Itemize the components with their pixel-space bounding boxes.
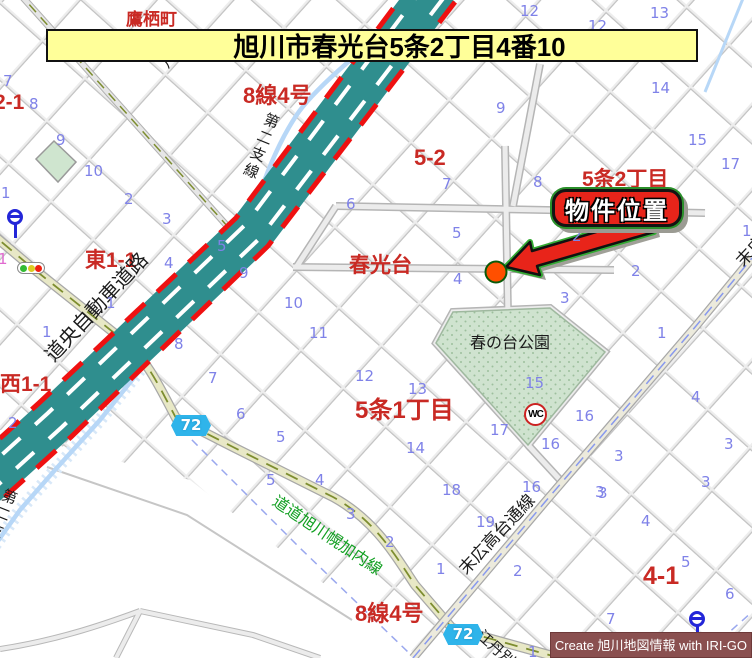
lot-number: 10 bbox=[284, 294, 303, 312]
lot-number: 19 bbox=[476, 513, 495, 531]
lot-number: 7 bbox=[442, 175, 452, 193]
lot-number: 2 bbox=[631, 262, 641, 280]
lot-number: 5 bbox=[276, 428, 286, 446]
lot-number: 2 bbox=[385, 533, 395, 551]
lot-number: 3 bbox=[346, 505, 356, 523]
lot-number: 3 bbox=[701, 473, 711, 491]
lot-number: 4 bbox=[453, 270, 463, 288]
lot-number: 1 bbox=[528, 643, 538, 658]
lot-number: 5 bbox=[452, 224, 462, 242]
lot-number: 2 bbox=[513, 562, 523, 580]
block-label-2-1: 2-1 bbox=[0, 92, 24, 114]
lot-number: 6 bbox=[346, 195, 356, 213]
lot-number: 7 bbox=[3, 72, 13, 90]
district-label-5jo2chome: 5条2丁目 bbox=[582, 169, 668, 191]
lot-number: 7 bbox=[606, 610, 616, 628]
lot-number: 16 bbox=[522, 478, 541, 496]
lot-number: 8 bbox=[174, 335, 184, 353]
map-canvas[interactable]: 鷹栖町8線4号八線第二支線第二支線2-15-25条2丁目春光台東1-1西1-15… bbox=[0, 0, 752, 658]
lot-number: 2 bbox=[124, 190, 134, 208]
lot-number: 3 bbox=[598, 484, 608, 502]
lot-number: 1 bbox=[106, 294, 116, 312]
lot-number: 4 bbox=[164, 254, 174, 272]
lot-number: 8 bbox=[533, 173, 543, 191]
district-label-shunkodai: 春光台 bbox=[349, 255, 412, 277]
lot-number: 1 bbox=[436, 560, 446, 578]
district-label-5jo1chome: 5条1丁目 bbox=[355, 398, 454, 423]
lot-number: 12 bbox=[520, 2, 539, 20]
address-banner: 旭川市春光台5条2丁目4番10 bbox=[46, 29, 698, 62]
lot-number: 9 bbox=[56, 131, 66, 149]
lot-number: 9 bbox=[239, 264, 249, 282]
road-label-8sen4go-bottom: 8線4号 bbox=[355, 602, 423, 625]
lot-number: 3 bbox=[560, 289, 570, 307]
lot-number: 4 bbox=[315, 471, 325, 489]
lot-number: 1 bbox=[657, 324, 667, 342]
traffic-light-icon bbox=[17, 262, 45, 274]
lot-number: 15 bbox=[688, 131, 707, 149]
lot-number: 13 bbox=[650, 4, 669, 22]
block-label-nishi1-1: 西1-1 bbox=[0, 374, 51, 396]
property-location-callout: 物件位置 bbox=[552, 189, 682, 227]
lot-number: 15 bbox=[525, 374, 544, 392]
lot-number: 3 bbox=[724, 435, 734, 453]
lot-number: 9 bbox=[496, 99, 506, 117]
lot-number: 17 bbox=[721, 155, 740, 173]
district-label-takasucho: 鷹栖町 bbox=[126, 11, 177, 29]
lot-number: 10 bbox=[84, 162, 103, 180]
toilet-icon: WC bbox=[524, 403, 547, 426]
lot-number: 3 bbox=[614, 447, 624, 465]
lot-number: 5 bbox=[217, 237, 227, 255]
lot-number: 1 bbox=[0, 250, 8, 268]
route-number-badge: 72 bbox=[171, 415, 211, 436]
lot-number: 5 bbox=[266, 471, 276, 489]
lot-number: 3 bbox=[162, 210, 172, 228]
map-credit: Create 旭川地図情報 with IRI-GO bbox=[550, 632, 752, 658]
lot-number: 13 bbox=[408, 380, 427, 398]
lot-number: 4 bbox=[641, 512, 651, 530]
lot-number: 8 bbox=[29, 95, 39, 113]
lot-number: 7 bbox=[208, 369, 218, 387]
lot-number: 12 bbox=[355, 367, 374, 385]
roadside-sign-icon bbox=[5, 209, 27, 241]
route-number-badge: 72 bbox=[443, 624, 483, 645]
lot-number: 1 bbox=[1, 184, 11, 202]
lot-number: 6 bbox=[236, 405, 246, 423]
lot-number: 1 bbox=[42, 323, 52, 341]
lot-number: 5 bbox=[681, 553, 691, 571]
lot-number: 1 bbox=[742, 222, 752, 240]
block-label-5-2: 5-2 bbox=[414, 146, 446, 169]
lot-number: 16 bbox=[575, 407, 594, 425]
block-label-4-1: 4-1 bbox=[643, 563, 679, 589]
lot-number: 2 bbox=[8, 414, 18, 432]
lot-number: 17 bbox=[490, 421, 509, 439]
lot-number: 6 bbox=[725, 585, 735, 603]
lot-number: 14 bbox=[651, 79, 670, 97]
lot-number: 11 bbox=[309, 324, 328, 342]
lot-number: 18 bbox=[442, 481, 461, 499]
lot-number: 16 bbox=[541, 435, 560, 453]
lot-number: 14 bbox=[406, 439, 425, 457]
property-marker-dot bbox=[486, 262, 507, 283]
road-label-8sen4go-top: 8線4号 bbox=[243, 84, 311, 107]
lot-number: 2 bbox=[572, 227, 582, 245]
park-label-harunodai: 春の台公園 bbox=[470, 336, 550, 353]
lot-number: 4 bbox=[691, 388, 701, 406]
